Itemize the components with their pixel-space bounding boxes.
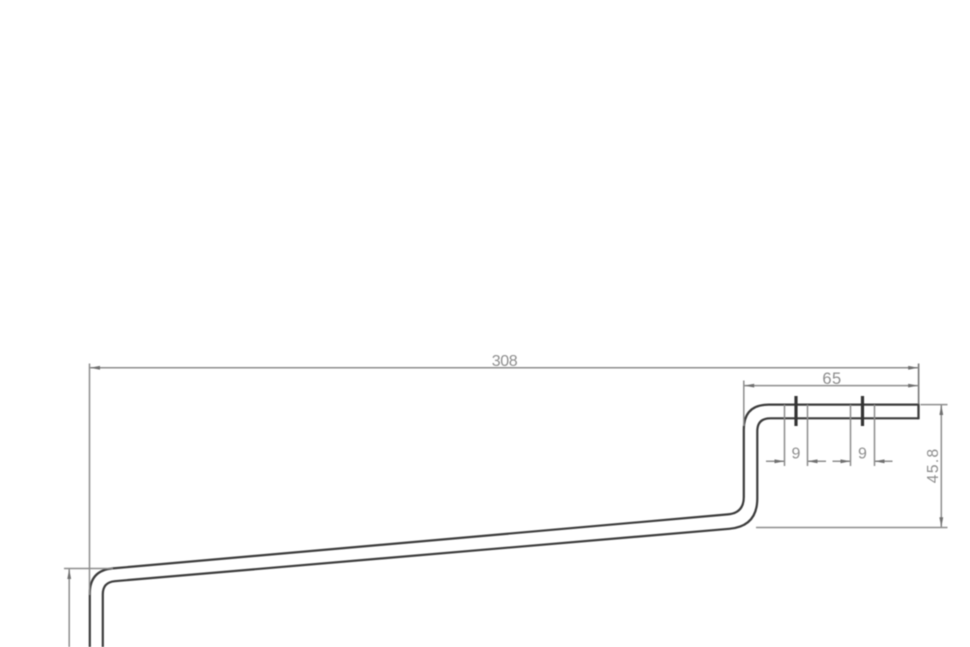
svg-text:65: 65 [822,370,841,388]
svg-text:45.8: 45.8 [925,447,942,483]
svg-text:9: 9 [858,446,867,463]
svg-text:308: 308 [492,353,518,370]
svg-text:9: 9 [792,446,801,463]
